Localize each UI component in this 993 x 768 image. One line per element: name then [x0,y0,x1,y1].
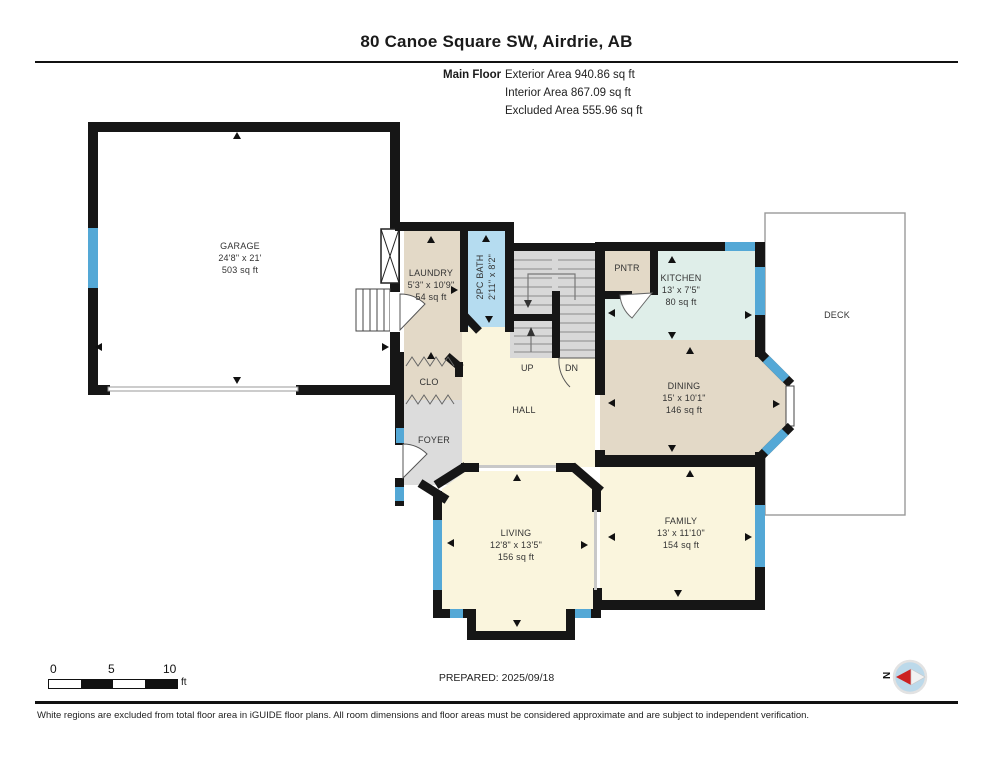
entry-window-upper [396,428,404,443]
deck-outline [765,213,905,515]
garage-steps [356,289,390,331]
entry-window-lower [395,487,404,501]
floor-plan-drawing [0,0,993,768]
room-label-bath: 2PC BATH2'11" x 8'2" [474,254,498,300]
room-label-garage: GARAGE24'8" x 21'503 sq ft [218,240,261,276]
deck-door [786,386,794,426]
living-window-bl [450,609,463,618]
disclaimer-text: White regions are excluded from total fl… [37,710,809,721]
prepared-date: PREPARED: 2025/09/18 [0,672,993,684]
garage-xbox [381,229,399,283]
room-label-hall: HALL [512,404,535,416]
room-label-family: FAMILY13' x 11'10"154 sq ft [657,515,705,551]
room-label-living: LIVING12'8" x 13'5"156 sq ft [490,527,542,563]
compass-icon: N [876,657,938,697]
footer-divider [35,701,958,704]
room-label-laundry: LAUNDRY5'3" x 10'9"54 sq ft [408,267,455,303]
compass-north-label: N [882,672,893,679]
room-label-closet: CLO [419,376,438,388]
kitchen-window-top [725,242,755,251]
floor-plan-page: 80 Canoe Square SW, Airdrie, AB Main Flo… [0,0,993,768]
stairs-down-label: DN [565,363,578,373]
living-window-br [575,609,591,618]
garage-door [108,387,298,391]
room-label-dining: DINING15' x 10'1"146 sq ft [662,380,705,416]
room-label-deck: DECK [824,309,850,321]
room-label-foyer: FOYER [418,434,450,446]
kitchen-window-right [755,267,765,315]
living-window-left [433,520,442,590]
room-label-kitchen: KITCHEN13' x 7'5"80 sq ft [661,272,702,308]
family-window [755,505,765,567]
garage-window [88,228,98,288]
stairs-up-label: UP [521,363,534,373]
living-family-opening [594,510,597,590]
living-hall-opening [479,465,556,468]
room-label-pantry: PNTR [614,262,639,274]
